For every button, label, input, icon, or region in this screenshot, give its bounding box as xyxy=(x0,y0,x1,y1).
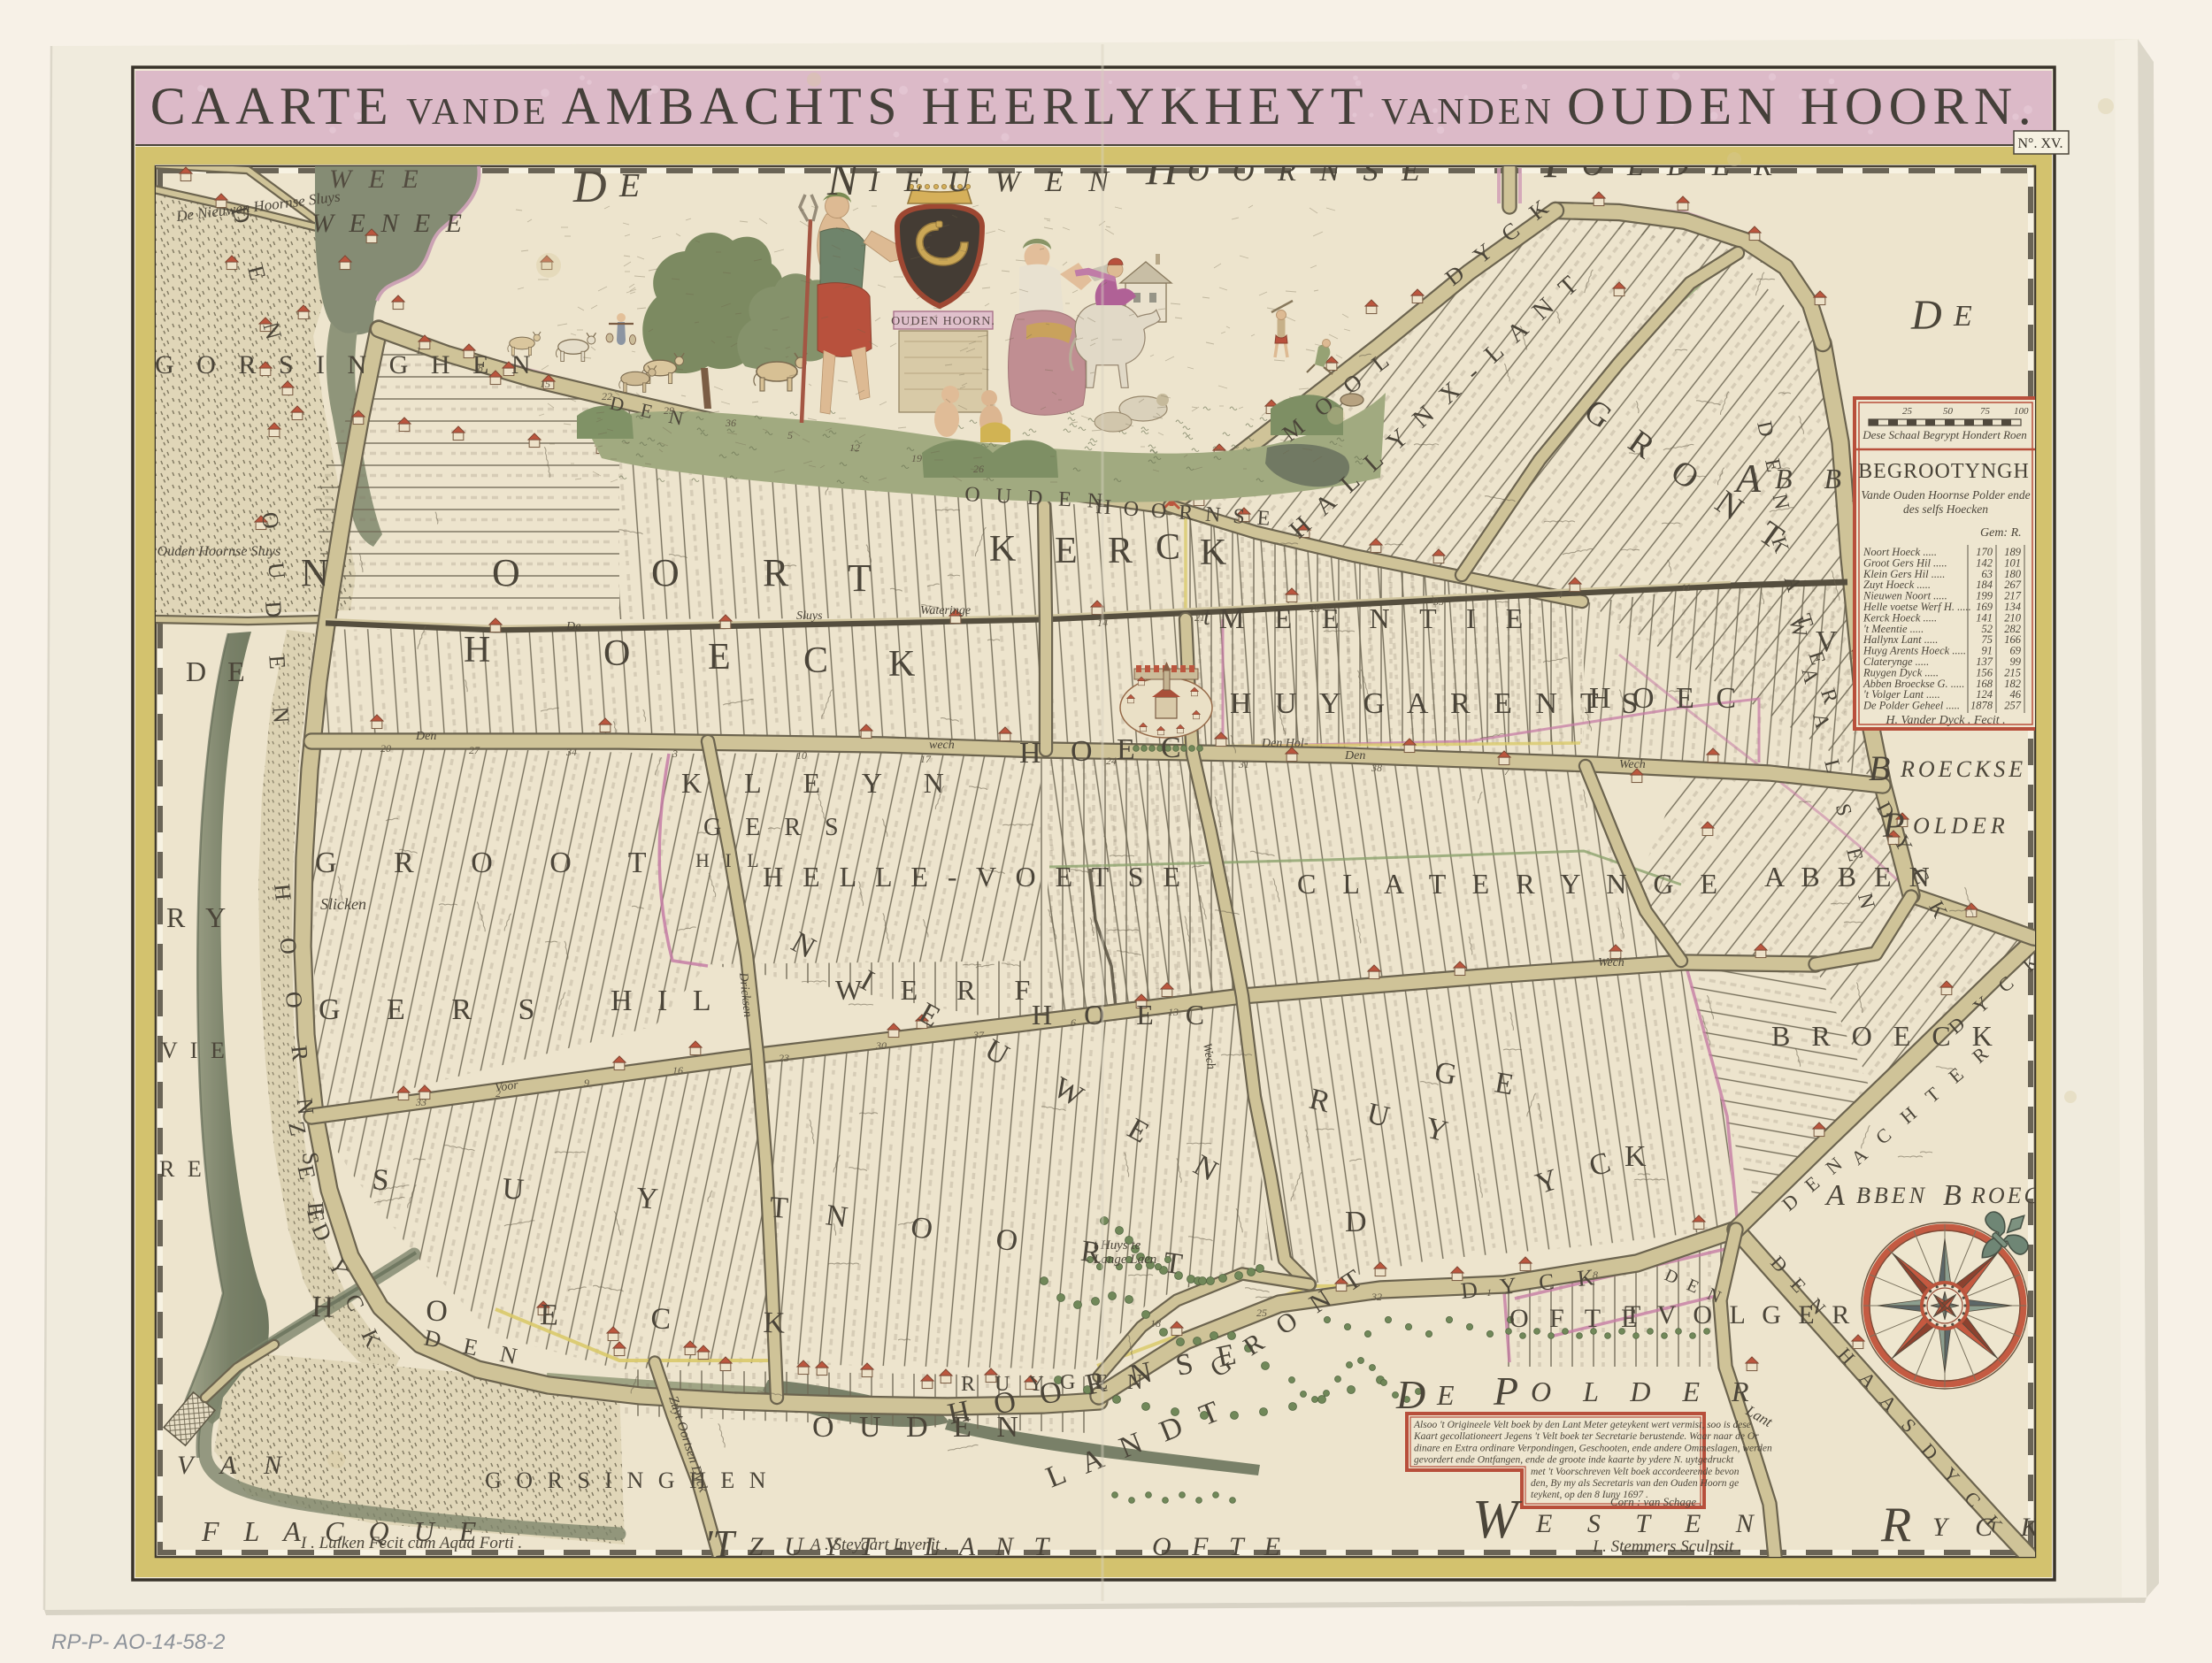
svg-text:RP-P- AO-14-58-2: RP-P- AO-14-58-2 xyxy=(51,1630,226,1654)
svg-text:N°. XV.: N°. XV. xyxy=(2018,136,2063,151)
